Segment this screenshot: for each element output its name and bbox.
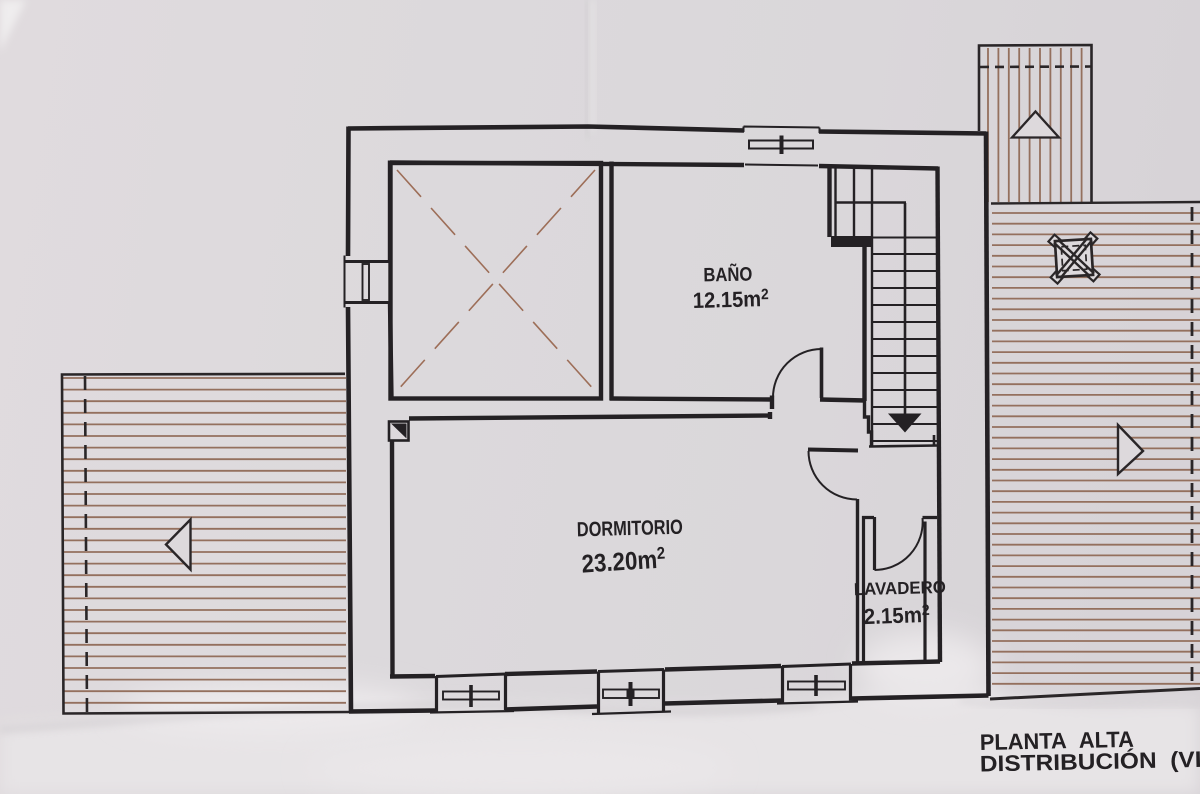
svg-text:2.15m2: 2.15m2: [863, 602, 930, 629]
svg-text:BAÑO: BAÑO: [703, 263, 752, 287]
svg-text:LAVADERO: LAVADERO: [854, 577, 946, 599]
svg-text:12.15m2: 12.15m2: [692, 286, 769, 313]
svg-text:DORMITORIO: DORMITORIO: [577, 516, 684, 542]
svg-text:DISTRIBUCIÓN (VIV: DISTRIBUCIÓN (VIV: [980, 747, 1200, 777]
